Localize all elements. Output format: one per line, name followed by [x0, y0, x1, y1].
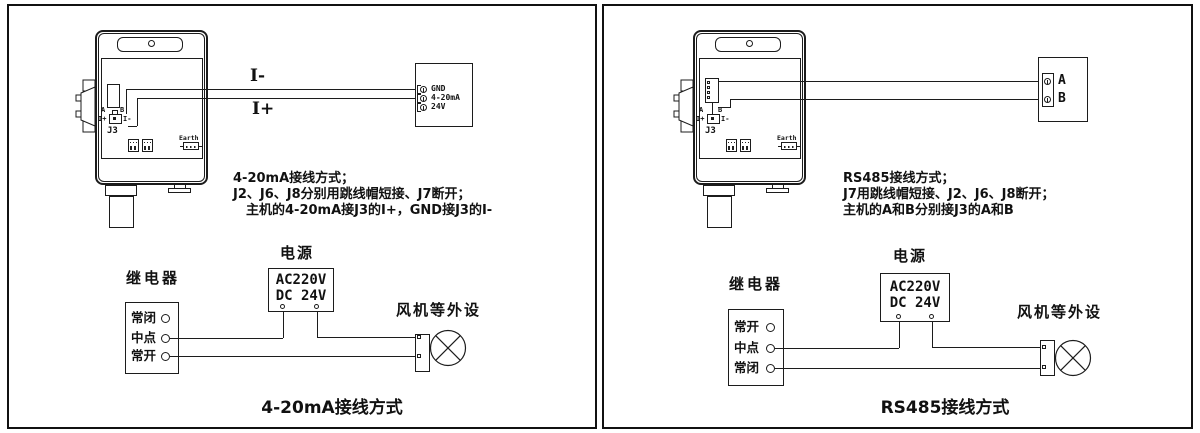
comm-pin [707, 81, 710, 84]
wire-power-to-fan [317, 337, 415, 338]
note-line: RS485接线方式； [843, 172, 955, 185]
screw-terminal-b [1044, 96, 1051, 103]
j3-label-a: A [101, 107, 105, 114]
wire-power-left [899, 322, 900, 348]
mount-foot-plate [766, 188, 789, 193]
fan-terminal-box [415, 334, 430, 372]
comm-to-j3-stub [712, 103, 713, 114]
relay-terminal-circle [161, 352, 170, 361]
pcb-component [107, 84, 120, 108]
power-text: AC220V DC 24V [268, 272, 334, 304]
wire-label-i-minus: I- [250, 68, 265, 85]
relay-terminal-circle [161, 334, 170, 343]
j3-label-iminus: I- [123, 116, 131, 123]
fan-label: 风机等外设 [396, 303, 481, 318]
jumper-block [740, 139, 751, 152]
wire-nc-to-fan [775, 368, 1040, 369]
terminal-label-a: A [1058, 74, 1066, 87]
note-line: 主机的A和B分别接J3的A和B [843, 204, 1014, 217]
wire-i-minus-v [126, 89, 127, 114]
power-terminal [280, 304, 285, 309]
earth-tick [778, 146, 781, 147]
relay-terminal-circle [161, 314, 170, 323]
fan-terminal [1042, 345, 1046, 349]
wire-label-i-plus: I+ [252, 101, 274, 118]
power-terminal [314, 304, 319, 309]
note-line: J2、J6、J8分别用跳线帽短接、J7断开； [233, 188, 471, 201]
earth-tick [199, 146, 202, 147]
j3-terminal-pad [711, 117, 714, 120]
relay-terminal-label: 常开 [734, 321, 759, 334]
power-terminal [929, 314, 934, 319]
handle-screw-icon [746, 40, 753, 47]
fan-symbol [1054, 339, 1092, 377]
relay-terminal-label: 常闭 [734, 362, 759, 375]
power-line-ac: AC220V [268, 272, 334, 288]
earth-label: Earth [179, 135, 199, 142]
earth-label: Earth [777, 135, 797, 142]
j3-terminal-pad [113, 117, 116, 120]
mount-foot-plate [168, 188, 191, 193]
j3-label-a: A [699, 107, 703, 114]
db9-connector-icon [672, 78, 696, 135]
wire-mid-to-power [775, 348, 899, 349]
comm-pin [707, 86, 710, 89]
relay-title: 继电器 [729, 277, 783, 292]
screw-terminal-a [1044, 78, 1051, 85]
relay-terminal-circle [766, 364, 775, 373]
power-terminal [896, 314, 901, 319]
j3-label-iplus: I+ [696, 116, 704, 123]
relay-terminal-circle [766, 344, 775, 353]
earth-connector [781, 142, 797, 150]
earth-connector [183, 142, 199, 150]
jumper-block [142, 139, 153, 152]
sensor-probe-body [109, 196, 134, 228]
earth-tick [797, 146, 800, 147]
note-line: 4-20mA接线方式； [233, 172, 354, 185]
relay-terminal-circle [766, 323, 775, 332]
panel-caption: RS485接线方式 [845, 400, 1045, 417]
wire-power-right [317, 312, 318, 337]
wire-i-minus [126, 89, 419, 90]
wiring-diagram-canvas: A I+ B I- J3 Earth I- I+ GND 4-20mA 24V [0, 0, 1200, 433]
earth-tick [180, 146, 183, 147]
j3-label-b: B [718, 107, 722, 114]
sensor-probe-body [707, 196, 732, 228]
j3-label-b: B [120, 107, 124, 114]
wire-b-stub [718, 107, 731, 108]
fan-label: 风机等外设 [1017, 305, 1102, 320]
terminal-label-24v: 24V [431, 103, 445, 111]
fan-symbol [429, 329, 467, 367]
wire-i-plus-v [137, 98, 138, 126]
wire-i-plus [137, 98, 419, 99]
terminal-label-4-20ma: 4-20mA [431, 94, 460, 102]
terminal-label-gnd: GND [431, 85, 445, 93]
db9-connector-icon [74, 78, 98, 135]
j3-name-label: J3 [107, 127, 118, 136]
screw-terminal-gnd [420, 86, 427, 93]
fan-terminal [1042, 365, 1046, 369]
relay-terminal-label: 中点 [734, 342, 759, 355]
sensor-probe-neck [105, 185, 137, 196]
screw-terminal-24v [420, 104, 427, 111]
power-title: 电源 [280, 246, 314, 261]
fan-terminal [417, 354, 421, 358]
comm-pin [707, 96, 710, 99]
wire-power-to-fan [932, 347, 1040, 348]
j3-label-iplus: I+ [98, 116, 106, 123]
note-line: J7用跳线帽短接、J2、J6、J8断开； [843, 188, 1055, 201]
wire-power-right [932, 322, 933, 347]
note-line: 主机的4-20mA接J3的I+，GND接J3的I- [246, 204, 492, 217]
comm-pin [707, 91, 710, 94]
wire-a [719, 81, 1044, 82]
wire-power-left [283, 312, 284, 338]
fan-terminal [417, 335, 421, 339]
wire-b [730, 99, 1044, 100]
jumper-block [726, 139, 737, 152]
relay-terminal-label: 常闭 [131, 312, 156, 325]
terminal-label-b: B [1058, 92, 1066, 105]
power-line-ac: AC220V [880, 279, 950, 295]
screw-terminal-4-20ma [420, 95, 427, 102]
power-line-dc: DC 24V [268, 288, 334, 304]
power-title: 电源 [893, 249, 927, 264]
handle-screw-icon [148, 40, 155, 47]
sensor-probe-neck [703, 185, 735, 196]
power-text: AC220V DC 24V [880, 279, 950, 311]
j3-label-iminus: I- [721, 116, 729, 123]
j3-name-label: J3 [705, 127, 716, 136]
relay-terminal-label: 中点 [131, 332, 156, 345]
wire-i-plus-stub [128, 126, 137, 127]
wire-mid-to-power [170, 338, 283, 339]
wire-no-to-fan [170, 356, 415, 357]
jumper-block [128, 139, 139, 152]
relay-terminal-label: 常开 [131, 350, 156, 363]
panel-caption: 4-20mA接线方式 [232, 400, 432, 417]
power-line-dc: DC 24V [880, 295, 950, 311]
relay-title: 继电器 [126, 271, 180, 286]
